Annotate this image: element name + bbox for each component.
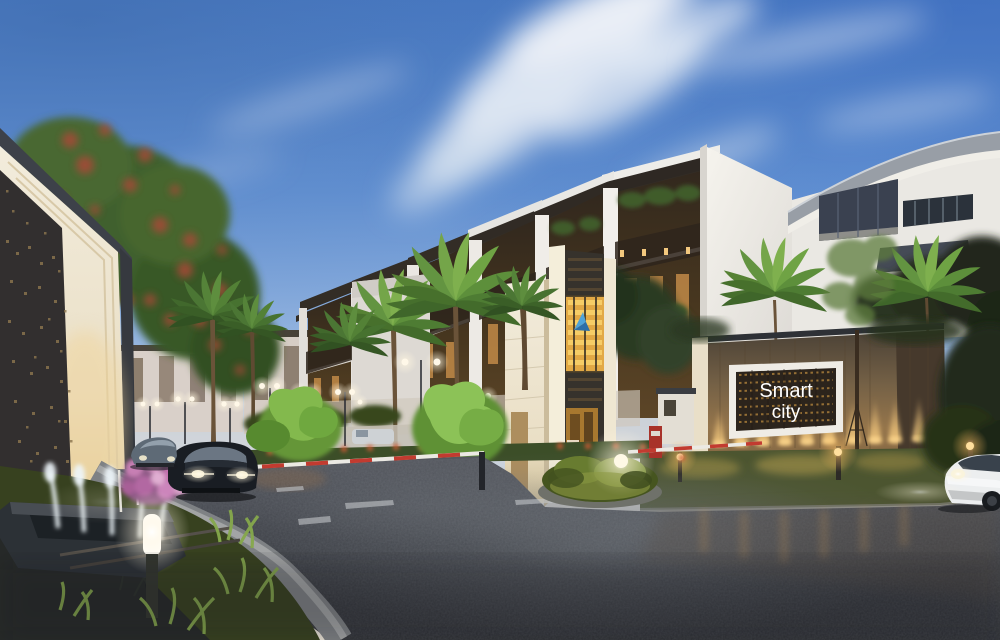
svg-text:Smart: Smart <box>759 380 813 402</box>
svg-text:city: city <box>772 402 801 423</box>
